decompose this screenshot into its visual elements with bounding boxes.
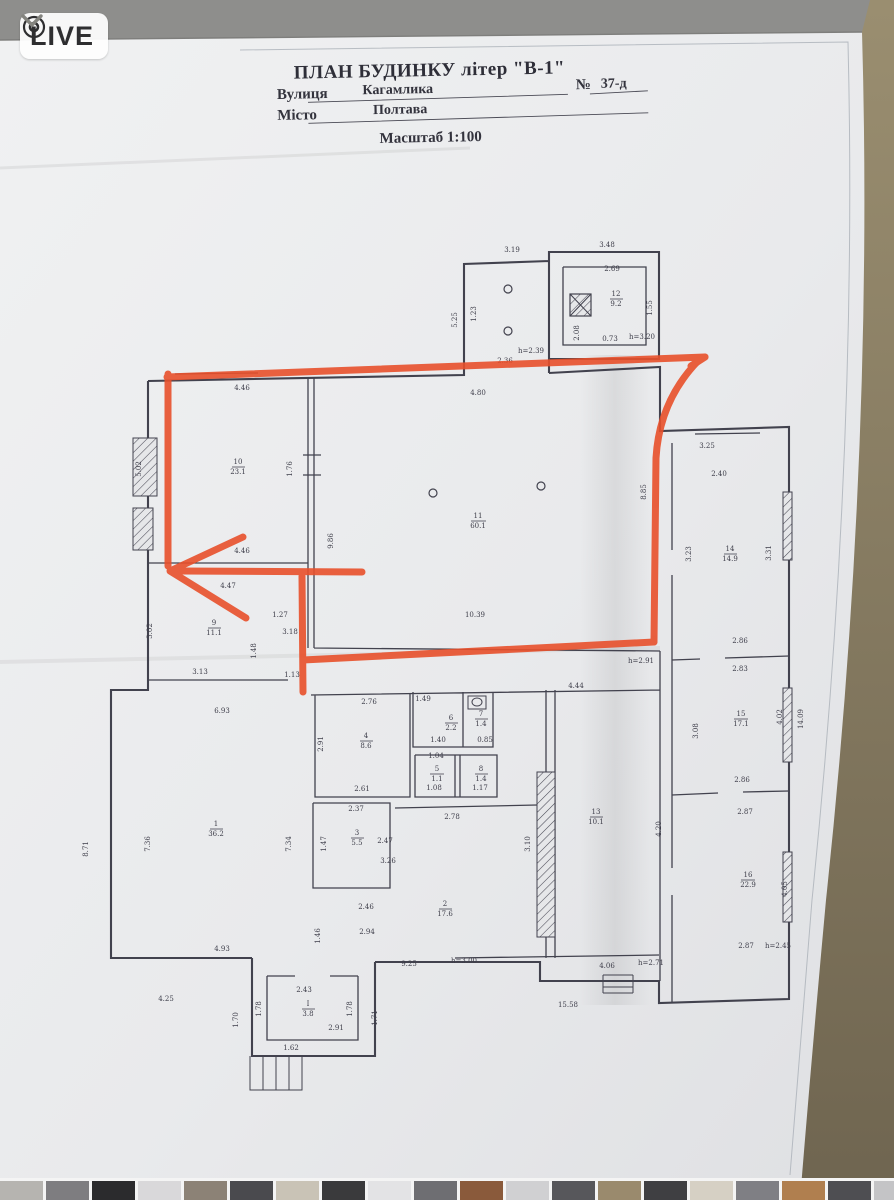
dimension-label: h=3.20 (629, 333, 655, 341)
dimension-label: h=3.00 (451, 957, 477, 965)
photo-viewer: ПЛАН БУДИНКУ літер "В-1" Вулиця Кагамлик… (0, 0, 894, 1200)
dimension-label: 17.6 (437, 910, 453, 918)
gallery-thumbnail[interactable] (690, 1181, 733, 1200)
dimension-label: 9.25 (401, 960, 417, 968)
dimension-label: h=2.39 (518, 347, 544, 355)
gallery-thumbnail[interactable] (828, 1181, 871, 1200)
dimension-label: 2.2 (445, 724, 456, 732)
gallery-thumbnail[interactable] (414, 1181, 457, 1200)
dimension-label: 3.23 (685, 546, 693, 562)
dimension-label: 1.76 (286, 461, 294, 477)
floor-plan-photo: ПЛАН БУДИНКУ літер "В-1" Вулиця Кагамлик… (0, 0, 894, 1200)
dimension-label: 1 (214, 820, 218, 828)
dimension-label: 8.71 (82, 841, 90, 857)
dimension-label: 2.61 (354, 785, 370, 793)
dimension-label: 60.1 (470, 522, 486, 530)
gallery-thumbnail[interactable] (184, 1181, 227, 1200)
stove-symbol (570, 294, 591, 316)
dimension-label: 1.78 (255, 1001, 263, 1017)
dimension-label: 2.47 (377, 837, 393, 845)
dimension-label: 2.76 (361, 698, 377, 706)
dimension-label: 1.04 (428, 752, 444, 760)
dimension-label: 4.20 (655, 821, 663, 837)
dimension-label: 6.93 (214, 707, 230, 715)
dimension-label: 7 (479, 710, 483, 718)
dimension-label: 1.13 (284, 671, 300, 679)
marker-arrow-shaft (180, 571, 362, 572)
dimension-label: 6 (449, 714, 454, 722)
dimension-label: 2.78 (444, 813, 460, 821)
dimension-label: 1.4 (475, 775, 487, 783)
dimension-label: 17.1 (733, 720, 749, 728)
gallery-thumbnail[interactable] (322, 1181, 365, 1200)
dimension-label: 2.43 (296, 986, 312, 994)
dimension-label: 2.91 (328, 1024, 344, 1032)
gallery-thumbnail[interactable] (276, 1181, 319, 1200)
dimension-label: 4.80 (470, 389, 486, 397)
marker-stub-line (302, 576, 303, 692)
dimension-label: 5.02 (135, 461, 143, 477)
dimension-label: 11 (474, 512, 483, 520)
gallery-thumbnail[interactable] (552, 1181, 595, 1200)
dimension-label: 23.1 (230, 468, 246, 476)
gallery-thumbnail[interactable] (874, 1181, 894, 1200)
street-label: Вулиця (277, 86, 328, 103)
gallery-thumbnail[interactable] (92, 1181, 135, 1200)
dimension-label: 9.2 (610, 300, 621, 308)
dimension-label: 2.83 (732, 665, 748, 673)
paper-sheet (0, 32, 864, 1200)
city-label: Місто (277, 107, 317, 124)
dimension-label: 1.27 (272, 611, 288, 619)
dimension-label: 10 (234, 458, 243, 466)
number-value: 37-д (601, 76, 627, 91)
dimension-label: 2.37 (348, 805, 364, 813)
dimension-label: 10.1 (588, 818, 604, 826)
dimension-label: 15 (737, 710, 746, 718)
dimension-label: 7.34 (285, 836, 293, 852)
dimension-label: 2.91 (317, 736, 325, 752)
dimension-label: 2.94 (359, 928, 375, 936)
dimension-label: 11.1 (206, 629, 222, 637)
dimension-label: 9 (212, 619, 216, 627)
gallery-thumbnail[interactable] (644, 1181, 687, 1200)
gallery-thumbnail[interactable] (138, 1181, 181, 1200)
dimension-label: 4.44 (568, 682, 584, 690)
dimension-label: 14.9 (722, 555, 738, 563)
dimension-label: 3.10 (524, 836, 532, 852)
dimension-label: 2.69 (604, 265, 620, 273)
gallery-thumbnail[interactable] (598, 1181, 641, 1200)
gallery-thumbnail[interactable] (782, 1181, 825, 1200)
gallery-thumbnail[interactable] (460, 1181, 503, 1200)
gallery-thumbnail[interactable] (0, 1181, 43, 1200)
dimension-label: 1.1 (431, 775, 442, 783)
dimension-label: 1.4 (475, 720, 487, 728)
dimension-label: 2 (443, 900, 447, 908)
gallery-thumbnail[interactable] (736, 1181, 779, 1200)
dimension-label: 14 (726, 545, 735, 553)
dimension-label: 4.46 (234, 547, 250, 555)
dimension-label: 1.08 (426, 784, 442, 792)
dimension-label: 3.08 (692, 723, 700, 739)
dimension-label: 8 (479, 765, 483, 773)
dimension-label: 2.86 (734, 776, 750, 784)
dimension-label: 3 (355, 829, 359, 837)
dimension-label: 12 (612, 290, 621, 298)
city-value: Полтава (373, 102, 427, 118)
dimension-label: 3.25 (699, 442, 715, 450)
dimension-label: 4.06 (599, 962, 615, 970)
dimension-label: 5 (435, 765, 439, 773)
dimension-label: 2.46 (358, 903, 374, 911)
dimension-label: 3.02 (146, 623, 154, 639)
dimension-label: 10.39 (465, 611, 485, 619)
dimension-label: 2.87 (738, 942, 754, 950)
gallery-thumbnail[interactable] (506, 1181, 549, 1200)
dimension-label: 4.05 (781, 881, 789, 897)
street-value: Кагамлика (362, 82, 433, 98)
dimension-label: 4.02 (776, 709, 784, 725)
dimension-label: 4.46 (234, 384, 250, 392)
dimension-label: h=2.45 (765, 942, 791, 950)
dimension-label: 3.31 (765, 545, 773, 561)
dimension-label: І (307, 1000, 310, 1008)
dimension-label: 3.8 (302, 1010, 313, 1018)
dimension-label: 4.47 (220, 582, 236, 590)
dimension-label: 1.70 (232, 1012, 240, 1028)
dimension-label: 1.48 (250, 643, 258, 659)
dimension-label: 4.25 (158, 995, 174, 1003)
dimension-label: 8.85 (640, 484, 648, 500)
dimension-label: 3.13 (192, 668, 208, 676)
dimension-label: 0.85 (477, 736, 493, 744)
paper-crease (580, 355, 650, 1005)
dimension-label: 2.08 (573, 325, 581, 341)
dimension-label: 1.47 (320, 836, 328, 852)
dimension-label: h=2.71 (638, 959, 664, 967)
dimension-label: 1.46 (314, 928, 322, 944)
dimension-label: 1.78 (346, 1001, 354, 1017)
dimension-label: 5.5 (351, 839, 362, 847)
dimension-label: 1.40 (430, 736, 446, 744)
dimension-label: 15.58 (558, 1001, 578, 1009)
chevron-down-icon[interactable] (20, 13, 44, 29)
dimension-label: 2.40 (711, 470, 727, 478)
dimension-label: 4 (364, 732, 369, 740)
dimension-label: 22.9 (740, 881, 756, 889)
dimension-label: 16 (744, 871, 753, 879)
dimension-label: 3.18 (282, 628, 298, 636)
filmstrip (0, 1178, 894, 1200)
dimension-label: 1.49 (415, 695, 431, 703)
dimension-label: 9.86 (327, 533, 335, 549)
dimension-label: 1.17 (472, 784, 488, 792)
dimension-label: 3.48 (599, 241, 615, 249)
gallery-thumbnail[interactable] (46, 1181, 89, 1200)
dimension-label: 3.19 (504, 246, 520, 254)
dimension-label: 14.09 (797, 709, 805, 729)
dimension-label: 2.86 (732, 637, 748, 645)
dimension-label: 13 (592, 808, 601, 816)
dimension-label: h=2.91 (628, 657, 654, 665)
dimension-label: 1.62 (283, 1044, 299, 1052)
dimension-label: 1.23 (470, 306, 478, 322)
dimension-label: 0.73 (602, 335, 618, 343)
dimension-label: 1.71 (371, 1010, 379, 1026)
dimension-label: 36.2 (208, 830, 224, 838)
dimension-label: 8.6 (360, 742, 372, 750)
dimension-label: 3.26 (380, 857, 396, 865)
dimension-label: 2.87 (737, 808, 753, 816)
gallery-thumbnail[interactable] (230, 1181, 273, 1200)
dimension-label: 4.93 (214, 945, 230, 953)
gallery-thumbnail[interactable] (368, 1181, 411, 1200)
scale-label: Масштаб 1:100 (379, 129, 482, 147)
live-badge[interactable]: LIVE (20, 13, 108, 59)
number-label: № (576, 77, 591, 93)
dimension-label: 1.55 (646, 300, 654, 316)
dimension-label: 5.25 (451, 312, 459, 328)
dimension-label: 7.36 (144, 836, 152, 852)
